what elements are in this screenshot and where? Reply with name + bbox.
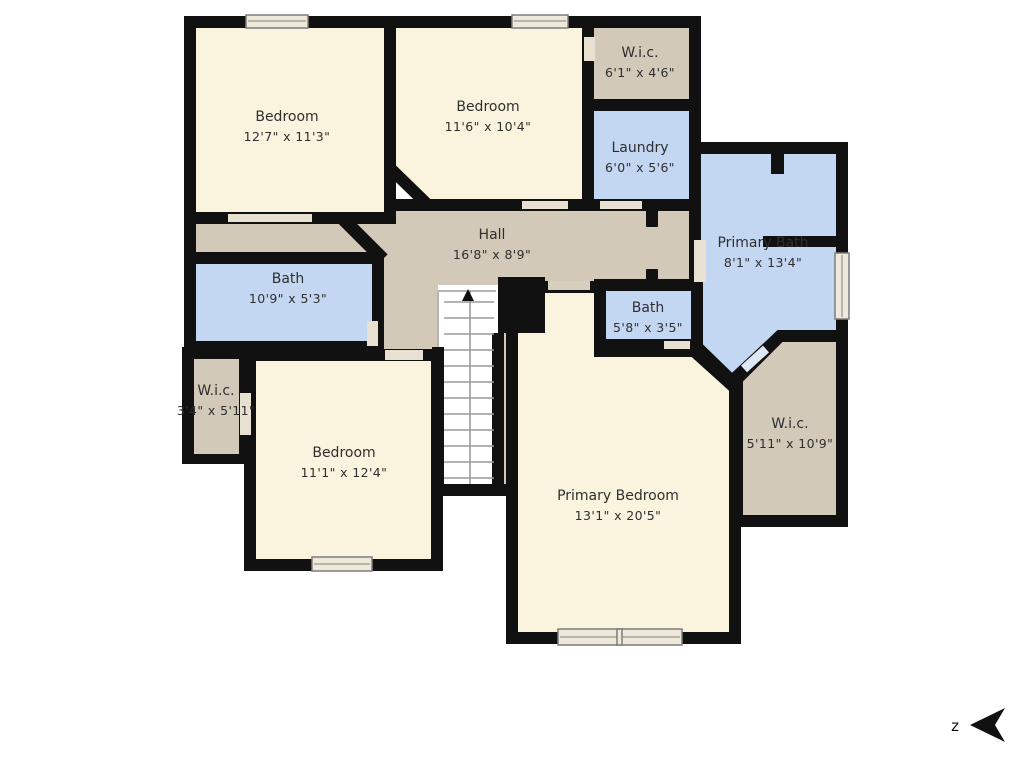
room-name: W.i.c. <box>747 415 834 434</box>
room-dims: 6'0" x 5'6" <box>605 158 675 177</box>
label-primary-bath: Primary Bath 8'1" x 13'4" <box>717 234 808 272</box>
room-dims: 16'8" x 8'9" <box>453 245 531 264</box>
room-dims: 11'6" x 10'4" <box>445 117 532 136</box>
compass: z <box>951 708 1005 742</box>
compass-label: z <box>951 717 959 735</box>
room-dims: 5'11" x 10'9" <box>747 434 834 453</box>
room-dims: 6'1" x 4'6" <box>605 63 675 82</box>
floorplan-page: z Hall 16'8" x 8'9" Bedroom 12'7" x 11'3… <box>0 0 1024 768</box>
label-bath-left: Bath 10'9" x 5'3" <box>249 270 327 308</box>
door-bedroom-bottom-left <box>385 350 423 360</box>
door-bedroom-top-middle <box>522 201 568 209</box>
compass-arrow-icon <box>970 708 1005 742</box>
outside-patch <box>176 464 252 504</box>
label-hall: Hall 16'8" x 8'9" <box>453 226 531 264</box>
room-dims: 8'1" x 13'4" <box>717 253 808 272</box>
room-dims: 10'9" x 5'3" <box>249 289 327 308</box>
room-name: Primary Bath <box>717 234 808 253</box>
label-primary-bedroom: Primary Bedroom 13'1" x 20'5" <box>557 487 679 525</box>
vestibule-door-gap <box>646 227 658 269</box>
label-laundry: Laundry 6'0" x 5'6" <box>605 139 675 177</box>
room-name: Bedroom <box>301 444 388 463</box>
primary-bath-stub-wall <box>771 148 784 174</box>
door-primary-bath <box>694 240 706 282</box>
stairs <box>438 285 498 490</box>
door-bedroom-top-left <box>228 214 312 222</box>
room-name: Primary Bedroom <box>557 487 679 506</box>
room-name: Bath <box>249 270 327 289</box>
door-laundry <box>600 201 642 209</box>
room-dims: 12'7" x 11'3" <box>244 127 331 146</box>
window-divider <box>617 629 622 645</box>
room-name: W.i.c. <box>605 44 675 63</box>
room-name: Laundry <box>605 139 675 158</box>
room-name: Bedroom <box>445 98 532 117</box>
room-name: W.i.c. <box>177 382 255 401</box>
door-wic-top <box>584 37 595 61</box>
label-wic-left: W.i.c. 3'4" x 5'11" <box>177 382 255 420</box>
room-dims: 5'8" x 3'5" <box>613 318 683 337</box>
label-bedroom-top-middle: Bedroom 11'6" x 10'4" <box>445 98 532 136</box>
stairs-left-wall <box>432 347 444 496</box>
label-bedroom-bottom-left: Bedroom 11'1" x 12'4" <box>301 444 388 482</box>
room-dims: 3'4" x 5'11" <box>177 401 255 420</box>
room-name: Hall <box>453 226 531 245</box>
room-name: Bedroom <box>244 108 331 127</box>
door-primary-bedroom <box>548 281 590 290</box>
stairs-bottom-wall <box>432 484 504 496</box>
stairs-right-wall <box>492 333 504 490</box>
door-bath-middle <box>664 341 690 349</box>
room-dims: 11'1" x 12'4" <box>301 463 388 482</box>
door-bath-left <box>367 321 378 346</box>
stair-landing-block <box>498 277 545 333</box>
label-bath-middle: Bath 5'8" x 3'5" <box>613 299 683 337</box>
label-bedroom-top-left: Bedroom 12'7" x 11'3" <box>244 108 331 146</box>
room-name: Bath <box>613 299 683 318</box>
room-dims: 13'1" x 20'5" <box>557 506 679 525</box>
label-wic-right: W.i.c. 5'11" x 10'9" <box>747 415 834 453</box>
label-wic-top: W.i.c. 6'1" x 4'6" <box>605 44 675 82</box>
